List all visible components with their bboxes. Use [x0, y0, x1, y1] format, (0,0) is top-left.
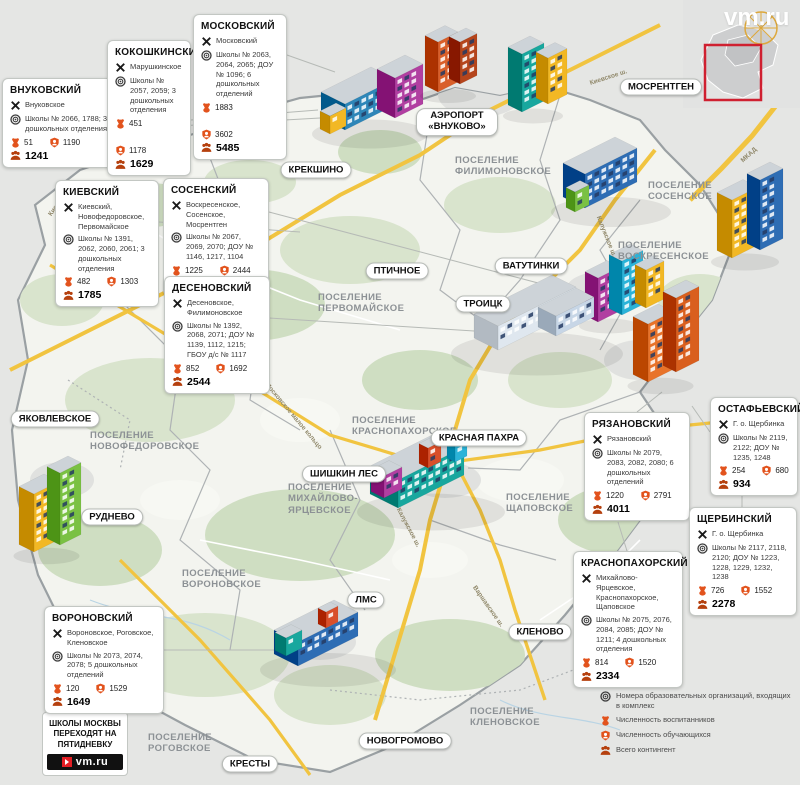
students-stat: 2444 [219, 265, 251, 276]
pupils-stat: 852 [172, 363, 199, 374]
district-card-kokoshkinsky: КОКОШКИНСКИЙМарушкинскоеШколы № 2057, 20… [107, 40, 191, 176]
students-value: 680 [775, 466, 788, 475]
card-total-row: 1649 [52, 696, 156, 708]
place-label-lms: ЛМС [347, 592, 384, 609]
card-title: КОКОШКИНСКИЙ [115, 47, 183, 58]
card-total-row: 934 [718, 478, 790, 490]
student-badge-icon [49, 137, 60, 148]
card-title: ЩЕРБИНСКИЙ [697, 514, 789, 525]
card-settlements-row: Г. о. Щербинка [697, 529, 789, 540]
map-legend: ПоселенияНомера образовательных организа… [600, 676, 795, 760]
card-title: СОСЕНСКИЙ [171, 185, 261, 196]
card-stats-row: 12202791 [592, 490, 682, 501]
card-settlements-row: Вороновское, Роговское, Кленовское [52, 628, 156, 648]
students-value: 3602 [215, 130, 233, 139]
card-settlements-row: Московский [201, 36, 279, 47]
total-group-icon [581, 671, 592, 682]
kindergarten-bear-icon [172, 363, 183, 374]
card-settlements-text: Рязановский [607, 434, 651, 444]
pupils-stat: 482 [63, 276, 90, 287]
vm-logo-text: vm.ru [76, 756, 108, 768]
vm-logo-arrow-icon [62, 757, 72, 767]
region-label-voronovskoye: ПОСЕЛЕНИЕ ВОРОНОВСКОЕ [182, 568, 287, 591]
org-numbers-icon [592, 448, 603, 459]
settlements-crossing-icon [171, 200, 182, 211]
pupils-stat: 1883 [201, 102, 233, 113]
card-schools-row: Школы № 2119, 2122; ДОУ № 1235, 1248 [718, 433, 790, 462]
students-stat: 680 [761, 465, 788, 476]
students-value: 2791 [654, 491, 672, 500]
settlements-crossing-icon [172, 298, 183, 309]
card-total-row: 1785 [63, 289, 151, 301]
pupils-value: 1225 [185, 266, 203, 275]
students-stat: 1552 [740, 585, 772, 596]
pupils-value: 254 [732, 466, 745, 475]
students-stat: 2791 [640, 490, 672, 501]
promo-text: Школы Москвы переходят на пятидневку [47, 719, 123, 750]
card-schools-row: Школы № 2117, 2118, 2120; ДОУ № 1223, 12… [697, 543, 789, 582]
total-group-icon [10, 150, 21, 161]
students-value: 2444 [233, 266, 251, 275]
district-card-krasnopakhorsky: КРАСНОПАХОРСКИЙМихайлово-Ярцевское, Крас… [573, 551, 683, 688]
org-numbers-icon [172, 321, 183, 332]
card-schools-row: Школы № 2073, 2074, 2078; 5 дошкольных о… [52, 651, 156, 680]
students-stat: 3602 [201, 129, 233, 140]
kindergarten-bear-icon [592, 490, 603, 501]
legend-item-4: Численность обучающихся [600, 730, 795, 741]
pupils-stat: 1220 [592, 490, 624, 501]
place-label-kresty: КРЕСТЫ [222, 756, 278, 773]
card-schools-row: Школы № 2075, 2076, 2084, 2085; ДОУ № 12… [581, 615, 675, 654]
district-card-shcherbinsky: ЩЕРБИНСКИЙГ. о. ЩербинкаШколы № 2117, 21… [689, 507, 797, 616]
student-badge-icon [215, 363, 226, 374]
place-label-klenovo: КЛЕНОВО [508, 624, 571, 641]
legend-label: Численность воспитанников [616, 715, 715, 725]
pupils-value: 1883 [215, 103, 233, 112]
legend-item-5: Всего контингент [600, 745, 795, 756]
legend-item-3: Численность воспитанников [600, 715, 795, 726]
total-group-icon [201, 142, 212, 153]
total-group-icon [172, 376, 183, 387]
total-value: 1241 [25, 150, 48, 162]
card-total-row: 1629 [115, 158, 183, 170]
settlements-crossing-icon [63, 202, 74, 213]
pupils-value: 814 [595, 658, 608, 667]
region-label-rogovskoye: ПОСЕЛЕНИЕ РОГОВСКОЕ [148, 732, 238, 755]
kindergarten-bear-icon [201, 102, 212, 113]
kindergarten-bear-icon [63, 276, 74, 287]
pupils-value: 120 [66, 684, 79, 693]
card-schools-text: Школы № 2073, 2074, 2078; 5 дошкольных о… [67, 651, 156, 680]
total-group-icon [52, 696, 63, 707]
pupils-value: 51 [24, 138, 33, 147]
settlements-crossing-icon [581, 573, 592, 584]
total-value: 1649 [67, 696, 90, 708]
student-badge-icon [95, 683, 106, 694]
district-card-ryazanovsky: РЯЗАНОВСКИЙРязановскийШколы № 2079, 2083… [584, 412, 690, 521]
org-numbers-icon [718, 433, 729, 444]
card-schools-text: Школы № 2067, 2069, 2070; ДОУ № 1146, 12… [186, 232, 261, 261]
pupils-stat: 726 [697, 585, 724, 596]
kindergarten-bear-icon [697, 585, 708, 596]
card-schools-text: Школы № 2057, 2059; 3 дошкольных отделен… [130, 76, 183, 115]
total-group-icon [63, 290, 74, 301]
card-total-row: 2278 [697, 598, 789, 610]
total-value: 4011 [607, 503, 630, 515]
legend-label: Номера образовательных организаций, вход… [616, 691, 795, 711]
settlements-crossing-icon [592, 434, 603, 445]
card-schools-row: Школы № 1392, 2068, 2071; ДОУ № 1139, 11… [172, 321, 262, 360]
kindergarten-bear-icon [115, 118, 126, 129]
settlements-crossing-icon [10, 100, 21, 111]
students-stat: 1178 [115, 145, 146, 156]
total-group-icon [592, 504, 603, 515]
card-schools-text: Школы № 2119, 2122; ДОУ № 1235, 1248 [733, 433, 790, 462]
card-title: КИЕВСКИЙ [63, 187, 151, 198]
card-total-row: 4011 [592, 503, 682, 515]
students-stat: 1529 [95, 683, 127, 694]
district-card-kievsky: КИЕВСКИЙКиевский, Новофедоровское, Перво… [55, 180, 159, 307]
total-value: 2278 [712, 598, 735, 610]
pupils-stat: 451 [115, 118, 142, 129]
card-stats-row: 18833602 [201, 102, 279, 140]
settlements-crossing-icon [52, 628, 63, 639]
total-group-icon [115, 159, 126, 170]
card-settlements-text: Михайлово-Ярцевское, Краснопахорское, Ща… [596, 573, 675, 612]
card-schools-text: Школы № 2079, 2083, 2082, 2080; 6 дошкол… [607, 448, 682, 487]
card-title: РЯЗАНОВСКИЙ [592, 419, 682, 430]
org-numbers-icon [581, 615, 592, 626]
pupils-stat: 51 [10, 137, 33, 148]
card-stats-row: 8521692 [172, 363, 262, 374]
card-settlements-row: Марушкинское [115, 62, 183, 73]
infographic-map-root: vm.ru Школы Москвы переходят на пятиднев… [0, 0, 800, 785]
kindergarten-bear-icon [10, 137, 21, 148]
place-label-mosrentgen: МОСРЕНТГЕН [620, 79, 702, 96]
card-stats-row: 7261552 [697, 585, 789, 596]
pupils-stat: 254 [718, 465, 745, 476]
card-schools-text: Школы № 1391, 2062, 2060, 2061; 3 дошкол… [78, 234, 151, 273]
place-label-novogromovo: НОВОГРОМОВО [359, 733, 452, 750]
total-value: 2544 [187, 376, 210, 388]
student-badge-icon [624, 657, 635, 668]
student-badge-icon [600, 730, 611, 741]
total-value: 1785 [78, 289, 101, 301]
card-schools-text: Школы № 2117, 2118, 2120; ДОУ № 1223, 12… [712, 543, 789, 582]
region-label-pervomayskoye: ПОСЕЛЕНИЕ ПЕРВОМАЙСКОЕ [318, 292, 423, 315]
student-badge-icon [740, 585, 751, 596]
card-settlements-text: Вороновское, Роговское, Кленовское [67, 628, 156, 648]
place-label-ptichnoye: ПТИЧНОЕ [366, 263, 429, 280]
org-numbers-icon [10, 114, 21, 125]
org-numbers-icon [171, 232, 182, 243]
org-numbers-icon [697, 543, 708, 554]
school-building-illustration-2 [420, 26, 477, 104]
place-label-shishkin-les: ШИШКИН ЛЕС [302, 466, 386, 483]
card-settlements-text: Марушкинское [130, 62, 181, 72]
card-settlements-text: Воскресенское, Сосенское, Мосрентген [186, 200, 261, 229]
card-settlements-text: Внуковское [25, 100, 65, 110]
settlements-crossing-icon [718, 419, 729, 430]
card-settlements-text: Г. о. Щербинка [733, 419, 784, 429]
total-value: 2334 [596, 670, 619, 682]
place-label-krekshino: КРЕКШИНО [281, 162, 352, 179]
kindergarten-bear-icon [581, 657, 592, 668]
district-card-moskovsky: МОСКОВСКИЙМосковскийШколы № 2063, 2064, … [193, 14, 287, 160]
card-settlements-text: Киевский, Новофедоровское, Первомайское [78, 202, 151, 231]
card-stats-row: 4511178 [115, 118, 183, 156]
org-numbers-icon [600, 691, 611, 702]
students-stat: 1520 [624, 657, 656, 668]
total-value: 934 [733, 478, 751, 490]
card-stats-row: 254680 [718, 465, 790, 476]
card-settlements-text: Г. о. Щербинка [712, 529, 763, 539]
students-value: 1303 [120, 277, 138, 286]
card-stats-row: 8141520 [581, 657, 675, 668]
card-schools-row: Школы № 1391, 2062, 2060, 2061; 3 дошкол… [63, 234, 151, 273]
card-schools-row: Школы № 2079, 2083, 2082, 2080; 6 дошкол… [592, 448, 682, 487]
students-value: 1520 [638, 658, 656, 667]
card-schools-row: Школы № 2063, 2064, 2065; ДОУ № 1096; 6 … [201, 50, 279, 99]
card-stats-row: 4821303 [63, 276, 151, 287]
pupils-value: 1220 [606, 491, 624, 500]
card-total-row: 2334 [581, 670, 675, 682]
student-badge-icon [640, 490, 651, 501]
region-label-sosenskoye: ПОСЕЛЕНИЕ СОСЕНСКОЕ [648, 180, 728, 203]
region-label-klenovskoye: ПОСЕЛЕНИЕ КЛЕНОВСКОЕ [470, 706, 565, 729]
pupils-value: 852 [186, 364, 199, 373]
vm-ru-watermark: vm.ru [724, 4, 789, 32]
district-card-voronovsky: ВОРОНОВСКИЙВороновское, Роговское, Клено… [44, 606, 164, 714]
student-badge-icon [201, 129, 212, 140]
students-stat: 1303 [106, 276, 138, 287]
card-settlements-text: Московский [216, 36, 257, 46]
org-numbers-icon [115, 76, 126, 87]
pupils-value: 451 [129, 119, 142, 128]
card-title: КРАСНОПАХОРСКИЙ [581, 558, 675, 569]
total-group-icon [697, 599, 708, 610]
region-label-novofedorovskoye: ПОСЕЛЕНИЕ НОВОФЕДОРОВСКОЕ [90, 430, 230, 453]
student-badge-icon [115, 145, 126, 156]
kindergarten-bear-icon [171, 265, 182, 276]
card-total-row: 5485 [201, 142, 279, 154]
card-title: ОСТАФЬЕВСКИЙ [718, 404, 790, 415]
district-card-ostafyevsky: ОСТАФЬЕВСКИЙГ. о. ЩербинкаШколы № 2119, … [710, 397, 798, 496]
card-schools-text: Школы № 2075, 2076, 2084, 2085; ДОУ № 12… [596, 615, 675, 654]
card-schools-text: Школы № 2063, 2064, 2065; ДОУ № 1096; 6 … [216, 50, 279, 99]
card-stats-row: 12252444 [171, 265, 261, 276]
students-value: 1552 [754, 586, 772, 595]
settlements-crossing-icon [115, 62, 126, 73]
vm-ru-logo: vm.ru [47, 754, 123, 770]
place-label-troitsk: ТРОИЦК [456, 296, 511, 313]
place-label-vatutinki: ВАТУТИНКИ [495, 258, 568, 275]
students-stat: 1692 [215, 363, 247, 374]
card-settlements-row: Киевский, Новофедоровское, Первомайское [63, 202, 151, 231]
pupils-stat: 814 [581, 657, 608, 668]
region-label-mikhaylovo-yartsevskoye: ПОСЕЛЕНИЕ МИХАЙЛОВО-ЯРЦЕВСКОЕ [288, 482, 373, 516]
place-label-yakovlevskoye: ЯКОВЛЕВСКОЕ [11, 411, 100, 428]
card-settlements-row: Михайлово-Ярцевское, Краснопахорское, Ща… [581, 573, 675, 612]
promo-box: Школы Москвы переходят на пятидневку vm.… [42, 712, 128, 776]
region-label-voskresenskoye: ПОСЕЛЕНИЕ ВОСКРЕСЕНСКОЕ [618, 240, 726, 263]
students-value: 1529 [109, 684, 127, 693]
card-stats-row: 1201529 [52, 683, 156, 694]
card-settlements-row: Рязановский [592, 434, 682, 445]
students-value: 1178 [129, 146, 146, 155]
pupils-stat: 120 [52, 683, 79, 694]
student-badge-icon [106, 276, 117, 287]
pupils-value: 726 [711, 586, 724, 595]
legend-label: Численность обучающихся [616, 730, 711, 740]
students-value: 1692 [229, 364, 247, 373]
region-label-shchapovskoye: ПОСЕЛЕНИЕ ЩАПОВСКОЕ [506, 492, 596, 515]
place-label-rudnevo: РУДНЕВО [81, 509, 143, 526]
settlements-crossing-icon [697, 529, 708, 540]
card-schools-row: Школы № 2057, 2059; 3 дошкольных отделен… [115, 76, 183, 115]
place-label-airport: АЭРОПОРТ «ВНУКОВО» [416, 108, 498, 136]
settlements-crossing-icon [201, 36, 212, 47]
card-schools-row: Школы № 2067, 2069, 2070; ДОУ № 1146, 12… [171, 232, 261, 261]
card-schools-text: Школы № 1392, 2068, 2071; ДОУ № 1139, 11… [187, 321, 262, 360]
kindergarten-bear-icon [52, 683, 63, 694]
pupils-value: 482 [77, 277, 90, 286]
org-numbers-icon [63, 234, 74, 245]
kindergarten-bear-icon [718, 465, 729, 476]
students-stat: 1190 [49, 137, 80, 148]
card-settlements-text: Десеновское, Филимоновское [187, 298, 262, 318]
legend-item-2: Номера образовательных организаций, вход… [600, 691, 795, 711]
card-settlements-row: Г. о. Щербинка [718, 419, 790, 430]
students-value: 1190 [63, 138, 80, 147]
total-group-icon [718, 479, 729, 490]
org-numbers-icon [52, 651, 63, 662]
card-title: ВОРОНОВСКИЙ [52, 613, 156, 624]
card-total-row: 2544 [172, 376, 262, 388]
student-badge-icon [219, 265, 230, 276]
total-value: 5485 [216, 142, 239, 154]
card-settlements-row: Десеновское, Филимоновское [172, 298, 262, 318]
region-label-filimonovskoye: ПОСЕЛЕНИЕ ФИЛИМОНОВСКОЕ [455, 155, 560, 178]
legend-label: Всего контингент [616, 745, 676, 755]
total-group-icon [600, 745, 611, 756]
place-label-krasnaya-pakhra: КРАСНАЯ ПАХРА [431, 430, 527, 447]
card-title: ДЕСЕНОВСКИЙ [172, 283, 262, 294]
total-value: 1629 [130, 158, 153, 170]
card-title: МОСКОВСКИЙ [201, 21, 279, 32]
org-numbers-icon [201, 50, 212, 61]
district-card-desenovsky: ДЕСЕНОВСКИЙДесеновское, ФилимоновскоеШко… [164, 276, 270, 394]
student-badge-icon [761, 465, 772, 476]
pupils-stat: 1225 [171, 265, 203, 276]
kindergarten-bear-icon [600, 715, 611, 726]
card-settlements-row: Воскресенское, Сосенское, Мосрентген [171, 200, 261, 229]
